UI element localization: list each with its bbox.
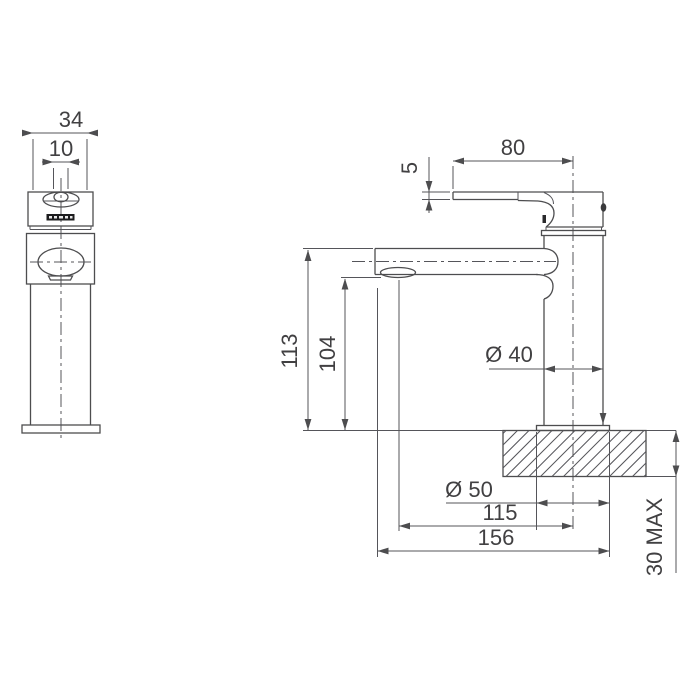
dim-label-spout-height: 113 [277, 333, 302, 368]
dim-label-overall-projection: 156 [478, 525, 515, 550]
dim-label-lever-width: 10 [49, 136, 73, 161]
dim-base-diameter: Ø 50 [445, 432, 609, 557]
dim-label-handle-length: 80 [501, 135, 525, 160]
dim-body-diameter: Ø 40 [485, 342, 606, 424]
dim-label-bench-thickness: 30 MAX [642, 498, 667, 577]
side-index-mark [543, 215, 547, 223]
hatch-lines [503, 431, 646, 477]
front-view: 34 10 [22, 107, 100, 438]
dim-label-lever-thickness: 5 [397, 162, 422, 174]
dim-label-spout-reach: 115 [482, 500, 517, 525]
dim-label-front-width: 34 [59, 107, 83, 132]
mounting-counter-section [303, 431, 676, 477]
dim-handle-length: 80 [453, 135, 573, 189]
dim-aerator-height: 104 [315, 278, 381, 431]
side-aerator [381, 268, 416, 278]
spec-drawing-canvas: 34 10 [0, 0, 700, 700]
technical-drawing: 34 10 [0, 0, 700, 700]
side-view: 80 5 113 104 [277, 135, 679, 576]
dim-bench-thickness: 30 MAX [642, 431, 679, 577]
side-handle-lever [453, 192, 606, 227]
brand-logo-badge [47, 214, 75, 221]
dim-lever-thickness: 5 [397, 157, 450, 213]
dim-label-aerator-height: 104 [315, 336, 340, 373]
side-button-plug [601, 203, 607, 211]
side-spout [375, 249, 558, 300]
dim-label-base-diameter: Ø 50 [445, 477, 493, 502]
mount-surface-arrow [600, 413, 607, 424]
dim-label-body-diameter: Ø 40 [485, 342, 533, 367]
